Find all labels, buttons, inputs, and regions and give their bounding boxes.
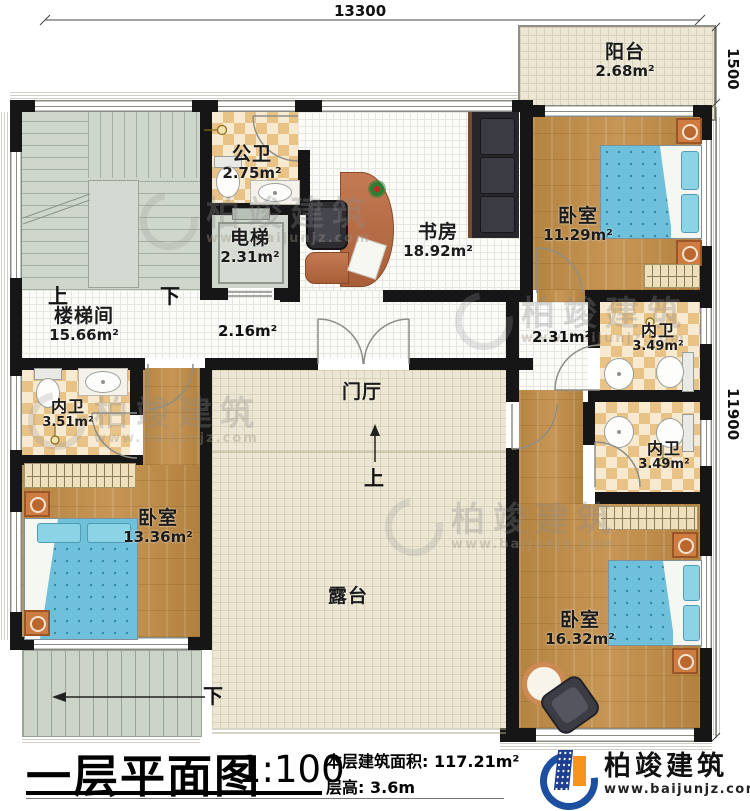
stair-landing (88, 180, 139, 288)
window-left-stairwell (10, 152, 22, 278)
room-label-corridor: 2.16m² (218, 322, 277, 340)
wall-elev-south-b (274, 288, 288, 300)
sheet-title: 一层平面图 (26, 740, 261, 805)
basin (85, 371, 121, 393)
terrace-up-label: 上 (364, 462, 384, 491)
window-top-study (322, 100, 512, 112)
window-right-bath-se (700, 420, 712, 466)
study-sofa (468, 112, 519, 238)
wall-h6 (595, 492, 712, 504)
nightstand (672, 532, 698, 558)
room-label-bedroom-ne: 卧室11.29m² (528, 206, 628, 243)
room-label-foyer: 门厅 (322, 382, 402, 403)
nightstand (676, 240, 702, 266)
wardrobe-se (598, 506, 698, 530)
stairwell-top-flight (88, 112, 200, 178)
floor-area-line: 本层建筑面积: 117.21m² (326, 748, 519, 772)
title-thin-rule (26, 798, 504, 799)
wall-elev-south-a (212, 288, 228, 300)
corridor-e-floor (519, 302, 588, 390)
basin (604, 358, 634, 390)
bedroom-ne-door-strip (537, 290, 585, 302)
wall-v8 (130, 368, 143, 415)
elevator-mechanism (232, 208, 270, 220)
stair-up-label: 上 (48, 280, 68, 309)
window-top-stairwell (35, 100, 192, 112)
exterior-down-label: 下 (203, 680, 223, 709)
exterior-sill-left (1, 112, 10, 640)
pillow (37, 523, 81, 543)
nightstand (672, 648, 698, 674)
room-label-stairwell: 楼梯间15.66m² (28, 306, 140, 343)
foyer-terrace-floor (212, 370, 506, 728)
office-chair (306, 200, 348, 250)
room-label-bath-ne: 内卫3.49m² (622, 322, 694, 354)
room-label-bath-se: 内卫3.49m² (628, 440, 700, 472)
exterior-sill-right (713, 117, 722, 735)
room-label-bedroom-se: 卧室16.32m² (532, 610, 628, 647)
wall-v5b (506, 448, 519, 742)
floor-height-label: 层高: (326, 778, 364, 797)
nightstand (676, 118, 702, 144)
floor-height-value: 3.6m (370, 778, 415, 797)
brand-logo-icon (540, 748, 596, 802)
dim-top: 13300 (334, 2, 386, 20)
exterior-stairs (22, 650, 202, 737)
title-underline (26, 791, 322, 795)
room-label-study: 书房18.92m² (378, 222, 498, 259)
stair-down-label: 下 (160, 280, 180, 309)
floor-area-label: 本层建筑面积: (326, 752, 428, 771)
window-balcony (545, 105, 693, 117)
basin (258, 183, 292, 202)
logo-building-orange (573, 756, 586, 786)
brand-name: 柏竣建筑 (604, 753, 750, 781)
room-label-corridor-e: 2.31m² (532, 328, 591, 346)
window-right-bath-ne (700, 308, 712, 344)
wardrobe-ne (644, 264, 700, 288)
room-label-elevator: 电梯2.31m² (206, 228, 294, 265)
nightstand (24, 610, 50, 636)
entry-w-floor (143, 368, 200, 465)
wall-v7 (583, 402, 595, 445)
nightstand (24, 491, 50, 517)
dim-right-lower: 11900 (724, 388, 742, 440)
window-left-bedroom-sw (10, 512, 22, 612)
sofa-cushion (480, 118, 515, 155)
room-label-bath-w: 内卫3.51m² (30, 398, 106, 430)
floor-height-line: 层高: 3.6m (326, 774, 415, 798)
pillow (683, 565, 700, 601)
entry-se-floor (519, 390, 583, 504)
pillow (681, 194, 699, 233)
wall-v4 (520, 103, 533, 302)
room-label-terrace: 露台 (308, 586, 388, 607)
pillow (681, 151, 699, 190)
room-label-public-bath: 公卫2.75m² (210, 144, 294, 181)
window-left-bath-w (10, 376, 22, 450)
wall-h3 (585, 290, 712, 302)
room-label-bedroom-sw: 卧室13.36m² (110, 508, 206, 545)
brand-url: www.baijunjz.com (604, 782, 750, 797)
desk-return (305, 252, 349, 284)
wardrobe-sw (24, 463, 136, 488)
brand-logo: 柏竣建筑 www.baijunjz.com (540, 748, 750, 802)
pillow (683, 605, 700, 641)
sofa-cushion (480, 157, 515, 194)
floor-area-value: 117.21m² (434, 752, 519, 771)
desk-plant (368, 180, 386, 198)
room-label-balcony: 阳台2.68m² (570, 42, 680, 79)
wall-v5a (506, 290, 519, 402)
wall-h4b (205, 358, 318, 370)
exterior-sill-top (10, 90, 520, 99)
floorplan-canvas: 柏竣建筑 www.baijunjz.com 柏竣建筑 www.baijunjz.… (0, 0, 750, 811)
window-top-publicbath (218, 100, 295, 112)
dim-right-upper: 1500 (724, 48, 742, 90)
toilet-bowl (656, 356, 684, 388)
wall-v1 (200, 100, 212, 300)
